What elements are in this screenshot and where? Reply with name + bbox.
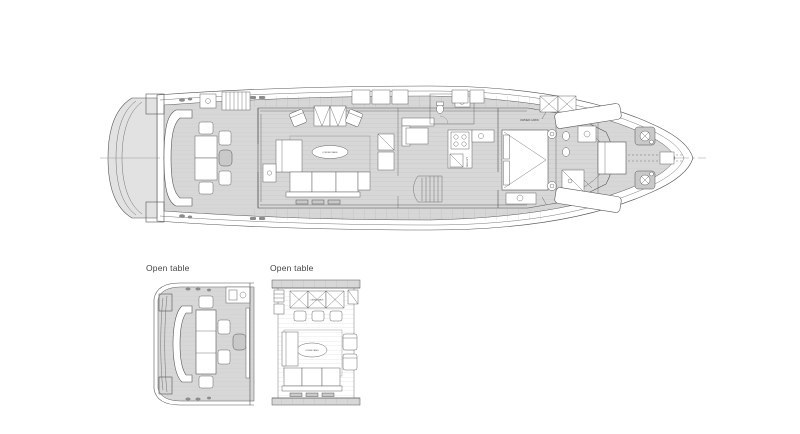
- bidet: [563, 148, 570, 157]
- flybridge-stairs: [222, 92, 250, 110]
- vanity-desk: [506, 193, 536, 204]
- cockpit-table: [195, 136, 217, 180]
- detail-salon-open-table: DINING TABLE COFFEE TABLE: [270, 278, 362, 408]
- folding-dining-table: [314, 106, 346, 126]
- yacht-plan-sheet: COFFEE TABLE: [0, 0, 800, 434]
- swim-platform: [108, 98, 157, 218]
- sideboard: [296, 200, 340, 204]
- console: [226, 287, 250, 303]
- stool: [548, 130, 557, 139]
- pouf: [233, 334, 246, 350]
- windlass-port: [635, 127, 655, 145]
- stove: [451, 132, 469, 149]
- tv-cabinet: [378, 134, 394, 170]
- galley-label: GALLEY: [466, 157, 469, 167]
- coffee-table-label: COFFEE TABLE: [322, 151, 338, 154]
- dining-table-label: DINING TABLE: [311, 299, 325, 302]
- stool: [548, 182, 557, 191]
- detail-aft-deck-open-table: [146, 278, 257, 410]
- detail2-caption: Open table: [270, 263, 314, 273]
- pouf: [219, 150, 232, 166]
- open-table: [196, 310, 216, 374]
- cockpit-console: [200, 94, 216, 108]
- toilet: [563, 132, 570, 141]
- main-deck-plan: COFFEE TABLE: [100, 78, 710, 242]
- coffee-table-label: COFFEE TABLE: [305, 349, 319, 352]
- detail1-caption: Open table: [146, 263, 190, 273]
- bed: [502, 130, 548, 190]
- owner-cabin-label: OWNER CABIN: [520, 118, 539, 122]
- coffee-table: COFFEE TABLE: [297, 343, 327, 357]
- coffee-table: COFFEE TABLE: [312, 146, 348, 159]
- open-folding-table: DINING TABLE: [290, 291, 344, 308]
- side-table: [263, 164, 276, 182]
- sideboard: [290, 393, 334, 397]
- windlass-starboard: [635, 171, 655, 189]
- wardrobe: [540, 96, 576, 112]
- dining-chairs: [294, 311, 342, 321]
- bow-seat: [598, 142, 626, 174]
